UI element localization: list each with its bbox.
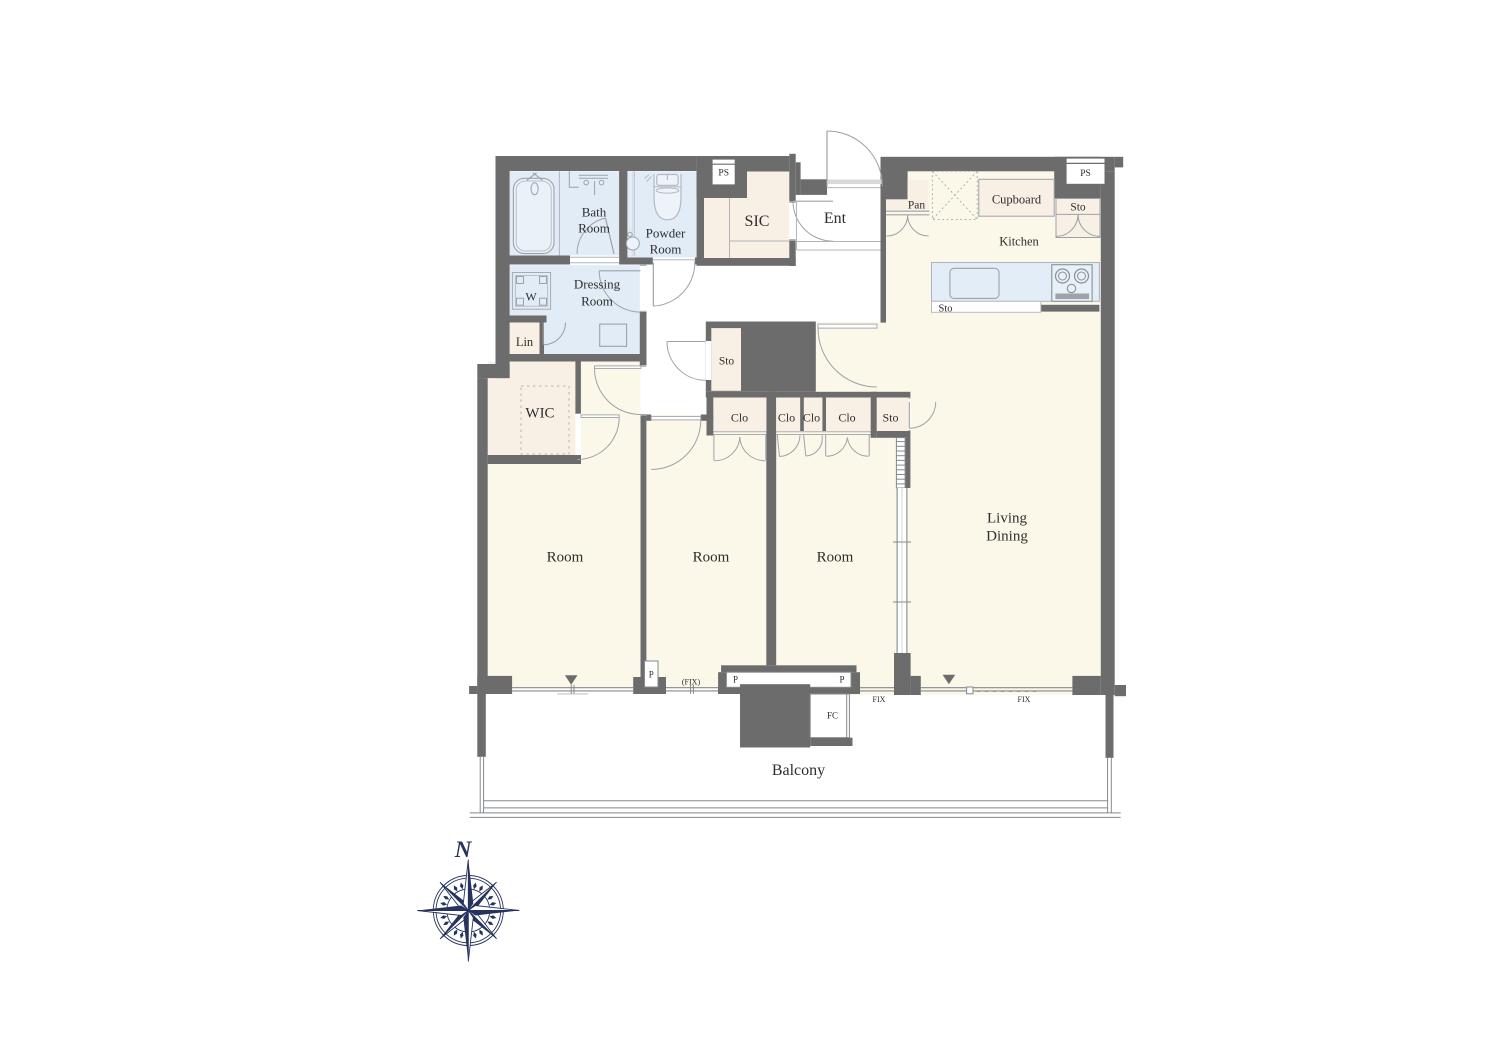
svg-text:Clo: Clo [838,411,855,425]
svg-text:Clo: Clo [803,411,820,425]
svg-text:P: P [839,675,844,685]
svg-text:Room: Room [581,294,613,309]
svg-text:Balcony: Balcony [772,762,825,779]
svg-text:FIX: FIX [1018,695,1031,704]
svg-text:FIX: FIX [873,695,886,704]
svg-text:Bath: Bath [582,205,607,220]
svg-text:FC: FC [827,711,838,721]
svg-text:Room: Room [650,242,682,257]
svg-text:Dressing: Dressing [574,277,621,292]
svg-text:Room: Room [547,550,584,566]
svg-text:Room: Room [817,550,854,566]
svg-text:Dining: Dining [986,529,1028,545]
svg-text:Pan: Pan [908,200,926,212]
svg-text:Room: Room [693,550,730,566]
svg-text:PS: PS [718,169,729,179]
svg-text:Sto: Sto [938,304,952,315]
svg-text:WIC: WIC [525,406,554,422]
svg-text:P: P [649,670,654,680]
svg-text:Lin: Lin [516,335,534,349]
svg-text:Sto: Sto [1070,202,1086,214]
svg-text:N: N [454,837,473,862]
svg-text:Room: Room [578,221,610,236]
svg-text:P: P [733,675,738,685]
svg-text:Ent: Ent [824,210,847,227]
svg-text:Cupboard: Cupboard [992,193,1042,207]
svg-text:Kitchen: Kitchen [999,235,1039,249]
svg-text:Sto: Sto [719,356,735,368]
svg-text:Living: Living [987,511,1027,527]
svg-text:PS: PS [1080,169,1091,179]
svg-text:Powder: Powder [646,226,686,241]
svg-text:W: W [525,290,537,304]
svg-text:(FIX): (FIX) [682,677,701,686]
svg-text:SIC: SIC [745,213,770,230]
svg-text:Sto: Sto [882,411,898,425]
svg-text:Clo: Clo [731,411,748,425]
svg-text:Clo: Clo [778,411,795,425]
